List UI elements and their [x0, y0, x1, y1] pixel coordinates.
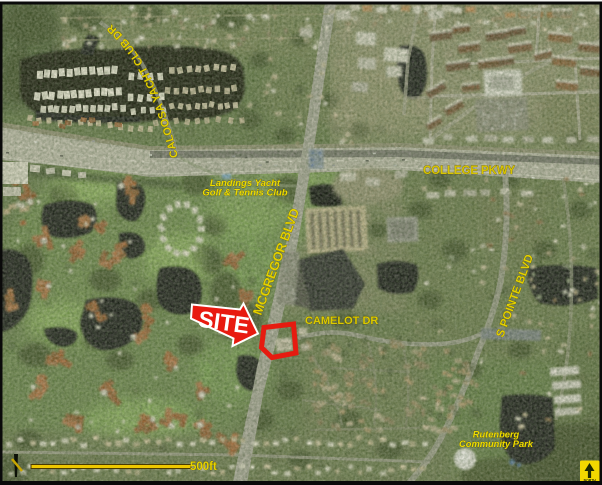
svg-text:Community Park: Community Park: [459, 439, 534, 449]
svg-text:CAMELOT DR: CAMELOT DR: [305, 315, 378, 327]
svg-text:COLLEGE PKWY: COLLEGE PKWY: [423, 165, 516, 177]
svg-text:Golf & Tennis Club: Golf & Tennis Club: [202, 188, 287, 199]
svg-text:Rutenberg: Rutenberg: [473, 430, 520, 440]
svg-text:500ft: 500ft: [190, 461, 217, 473]
